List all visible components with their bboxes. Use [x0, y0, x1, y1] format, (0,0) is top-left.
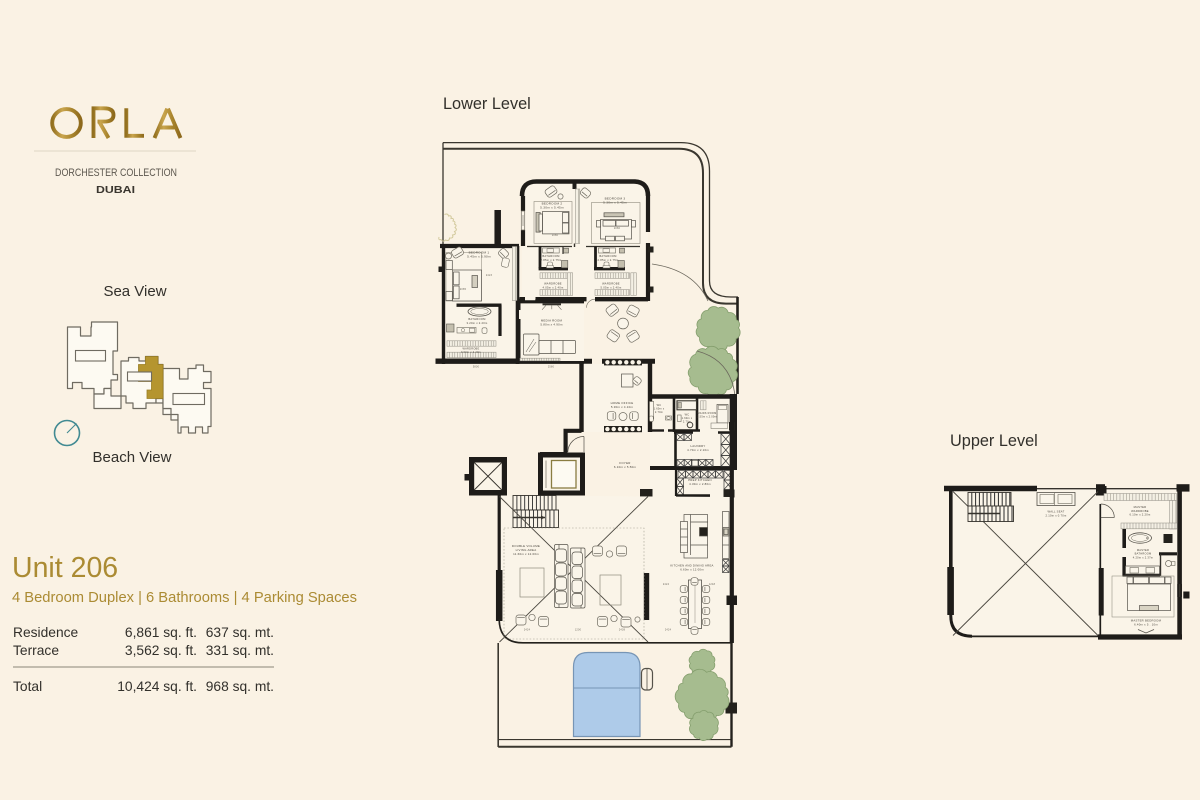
- svg-text:WALL SEAT: WALL SEAT: [1048, 510, 1065, 514]
- svg-text:3,562 sq. ft.: 3,562 sq. ft.: [125, 643, 197, 658]
- svg-text:5.30m x 5.45m: 5.30m x 5.45m: [603, 201, 627, 205]
- svg-text:2438: 2438: [619, 629, 626, 632]
- svg-text:2.70m: 2.70m: [655, 411, 663, 414]
- svg-text:2.70m: 2.70m: [683, 421, 691, 424]
- svg-text:2085: 2085: [460, 288, 467, 291]
- svg-text:2424: 2424: [524, 629, 531, 632]
- svg-text:5800: 5800: [473, 366, 480, 369]
- svg-text:5.80m x 4.90m: 5.80m x 4.90m: [540, 323, 563, 327]
- svg-text:Sea View: Sea View: [103, 283, 166, 300]
- svg-text:BATHROOM: BATHROOM: [468, 317, 486, 321]
- svg-text:WARDROBE: WARDROBE: [544, 282, 562, 286]
- svg-text:5.30m x 5.45m: 5.30m x 5.45m: [540, 206, 564, 210]
- svg-text:331 sq. mt.: 331 sq. mt.: [206, 643, 274, 658]
- svg-text:BATHROOM: BATHROOM: [542, 254, 560, 258]
- svg-text:5.05m x 2.40m: 5.05m x 2.40m: [600, 285, 622, 289]
- svg-text:3.60m x 2.20m: 3.60m x 2.20m: [461, 350, 481, 354]
- svg-text:4.30m x 2.80m: 4.30m x 2.80m: [689, 482, 711, 486]
- svg-text:Lower Level: Lower Level: [443, 95, 531, 113]
- svg-text:5.45m x 5.90m: 5.45m x 5.90m: [467, 255, 491, 259]
- svg-text:MAIDS ROOM: MAIDS ROOM: [698, 412, 717, 415]
- svg-text:Total: Total: [13, 679, 42, 694]
- svg-text:11.60m x 12.00m: 11.60m x 12.00m: [513, 552, 539, 556]
- svg-text:WARDROBE: WARDROBE: [1131, 509, 1149, 513]
- svg-text:2424: 2424: [663, 583, 670, 586]
- svg-text:MASTER: MASTER: [1137, 548, 1149, 552]
- svg-text:WARDROBE: WARDROBE: [602, 282, 620, 286]
- svg-text:2.85m x 2.75m: 2.85m x 2.75m: [540, 258, 562, 262]
- svg-text:1.60m x: 1.60m x: [654, 408, 665, 411]
- svg-text:2080: 2080: [614, 227, 621, 230]
- svg-text:4 Bedroom Duplex | 6 Bathrooms: 4 Bedroom Duplex | 6 Bathrooms | 4 Parki…: [12, 589, 357, 606]
- svg-text:4.20m x 2.37m: 4.20m x 2.37m: [1133, 555, 1153, 559]
- svg-text:BATHROOM: BATHROOM: [1135, 552, 1152, 556]
- svg-text:2580: 2580: [548, 366, 555, 369]
- svg-text:WC: WC: [685, 414, 690, 417]
- svg-text:6.60m x 12.00m: 6.60m x 12.00m: [680, 567, 704, 571]
- svg-text:2424: 2424: [665, 629, 672, 632]
- svg-text:637 sq. mt.: 637 sq. mt.: [206, 625, 274, 640]
- svg-text:4.70m x 2.10m: 4.70m x 2.10m: [687, 448, 709, 452]
- svg-text:2.10m x 0.70m: 2.10m x 0.70m: [1045, 513, 1067, 517]
- svg-text:6,861 sq. ft.: 6,861 sq. ft.: [125, 625, 197, 640]
- svg-text:6.40m x 5 . 10m: 6.40m x 5 . 10m: [1134, 622, 1158, 626]
- svg-text:5.30m x 4.10m: 5.30m x 4.10m: [611, 405, 634, 409]
- svg-text:BATHROOM: BATHROOM: [599, 254, 617, 258]
- svg-text:6.10m x 5.50m: 6.10m x 5.50m: [614, 465, 637, 469]
- svg-text:Unit 206: Unit 206: [12, 552, 118, 584]
- svg-text:DUBAI: DUBAI: [96, 185, 135, 196]
- svg-text:Residence: Residence: [13, 625, 79, 640]
- svg-text:Upper Level: Upper Level: [950, 432, 1038, 450]
- svg-text:2080: 2080: [552, 234, 559, 237]
- svg-text:WARDROBE: WARDROBE: [463, 347, 480, 351]
- svg-text:DORCHESTER COLLECTION: DORCHESTER COLLECTION: [55, 167, 177, 179]
- svg-text:4.05m x 2.40m: 4.05m x 2.40m: [542, 285, 564, 289]
- svg-text:1200: 1200: [575, 629, 582, 632]
- svg-text:2423: 2423: [486, 274, 493, 277]
- svg-text:2.85m x 2.75m: 2.85m x 2.75m: [597, 258, 619, 262]
- svg-text:6.10m x 2.20m: 6.10m x 2.20m: [1129, 513, 1151, 517]
- svg-text:Terrace: Terrace: [13, 643, 59, 658]
- svg-text:10,424 sq. ft.: 10,424 sq. ft.: [117, 679, 197, 694]
- svg-text:WC: WC: [657, 404, 662, 407]
- svg-text:2.55m x 2.00m: 2.55m x 2.00m: [697, 416, 717, 419]
- svg-text:1.60m x: 1.60m x: [682, 417, 693, 420]
- svg-text:MASTER: MASTER: [1134, 505, 1147, 509]
- svg-text:3.20m x 2.20m: 3.20m x 2.20m: [466, 321, 488, 325]
- svg-text:1248: 1248: [709, 583, 716, 586]
- svg-text:Beach View: Beach View: [93, 449, 172, 466]
- svg-text:968 sq. mt.: 968 sq. mt.: [206, 679, 274, 694]
